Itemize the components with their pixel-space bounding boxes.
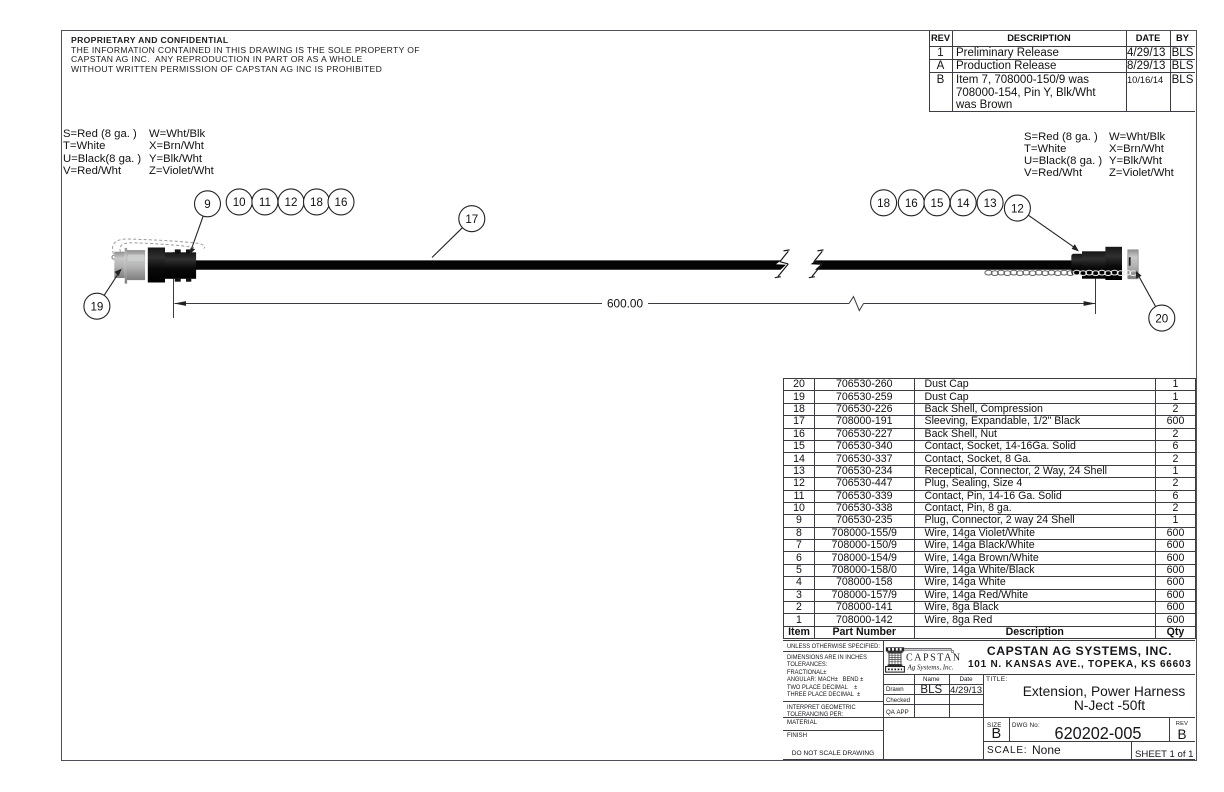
svg-text:600.00: 600.00 — [607, 297, 644, 311]
svg-text:18: 18 — [877, 197, 890, 210]
svg-text:10: 10 — [233, 196, 246, 209]
svg-text:9: 9 — [204, 198, 210, 211]
svg-text:16: 16 — [335, 196, 348, 209]
svg-text:20: 20 — [1155, 312, 1168, 325]
svg-text:15: 15 — [931, 197, 944, 210]
svg-text:19: 19 — [90, 300, 103, 313]
svg-text:12: 12 — [285, 196, 298, 209]
svg-text:Ag Systems, Inc.: Ag Systems, Inc. — [907, 663, 954, 671]
svg-text:CAPSTAN: CAPSTAN — [906, 652, 962, 663]
svg-text:16: 16 — [905, 197, 918, 210]
svg-text:11: 11 — [259, 196, 271, 209]
svg-text:14: 14 — [957, 197, 970, 210]
svg-text:13: 13 — [984, 197, 997, 210]
svg-text:18: 18 — [310, 196, 323, 209]
svg-text:17: 17 — [465, 213, 478, 226]
svg-text:12: 12 — [1011, 202, 1024, 215]
